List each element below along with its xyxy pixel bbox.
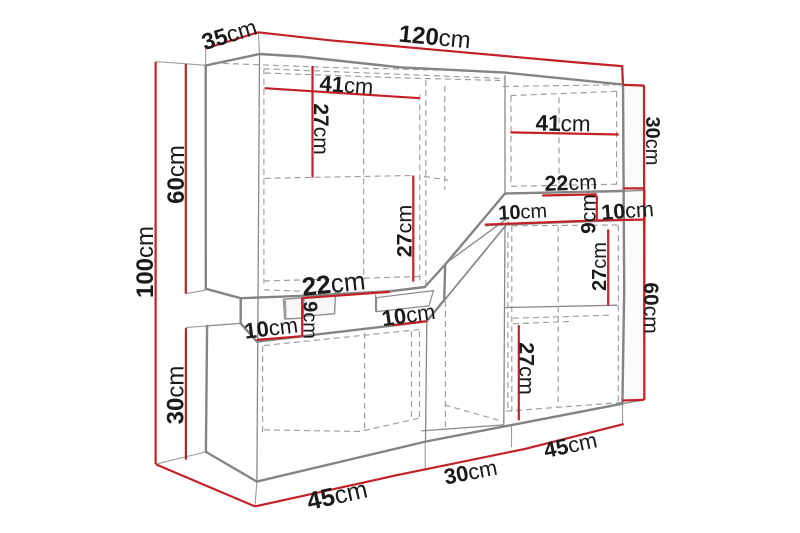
svg-text:22cm: 22cm	[544, 170, 597, 196]
svg-text:27cm: 27cm	[393, 205, 417, 258]
svg-text:41cm: 41cm	[319, 71, 374, 100]
svg-text:60cm: 60cm	[639, 282, 662, 333]
svg-text:41cm: 41cm	[535, 111, 590, 137]
svg-text:9cm: 9cm	[578, 194, 601, 234]
svg-text:30cm: 30cm	[641, 117, 663, 166]
svg-text:27cm: 27cm	[309, 103, 332, 154]
svg-text:10cm: 10cm	[600, 197, 654, 225]
svg-text:60cm: 60cm	[163, 145, 190, 204]
svg-text:27cm: 27cm	[514, 342, 538, 395]
svg-text:100cm: 100cm	[132, 226, 159, 298]
svg-text:10cm: 10cm	[498, 200, 548, 225]
svg-text:27cm: 27cm	[589, 242, 611, 291]
svg-text:30cm: 30cm	[163, 366, 190, 425]
svg-text:9cm: 9cm	[299, 301, 321, 339]
